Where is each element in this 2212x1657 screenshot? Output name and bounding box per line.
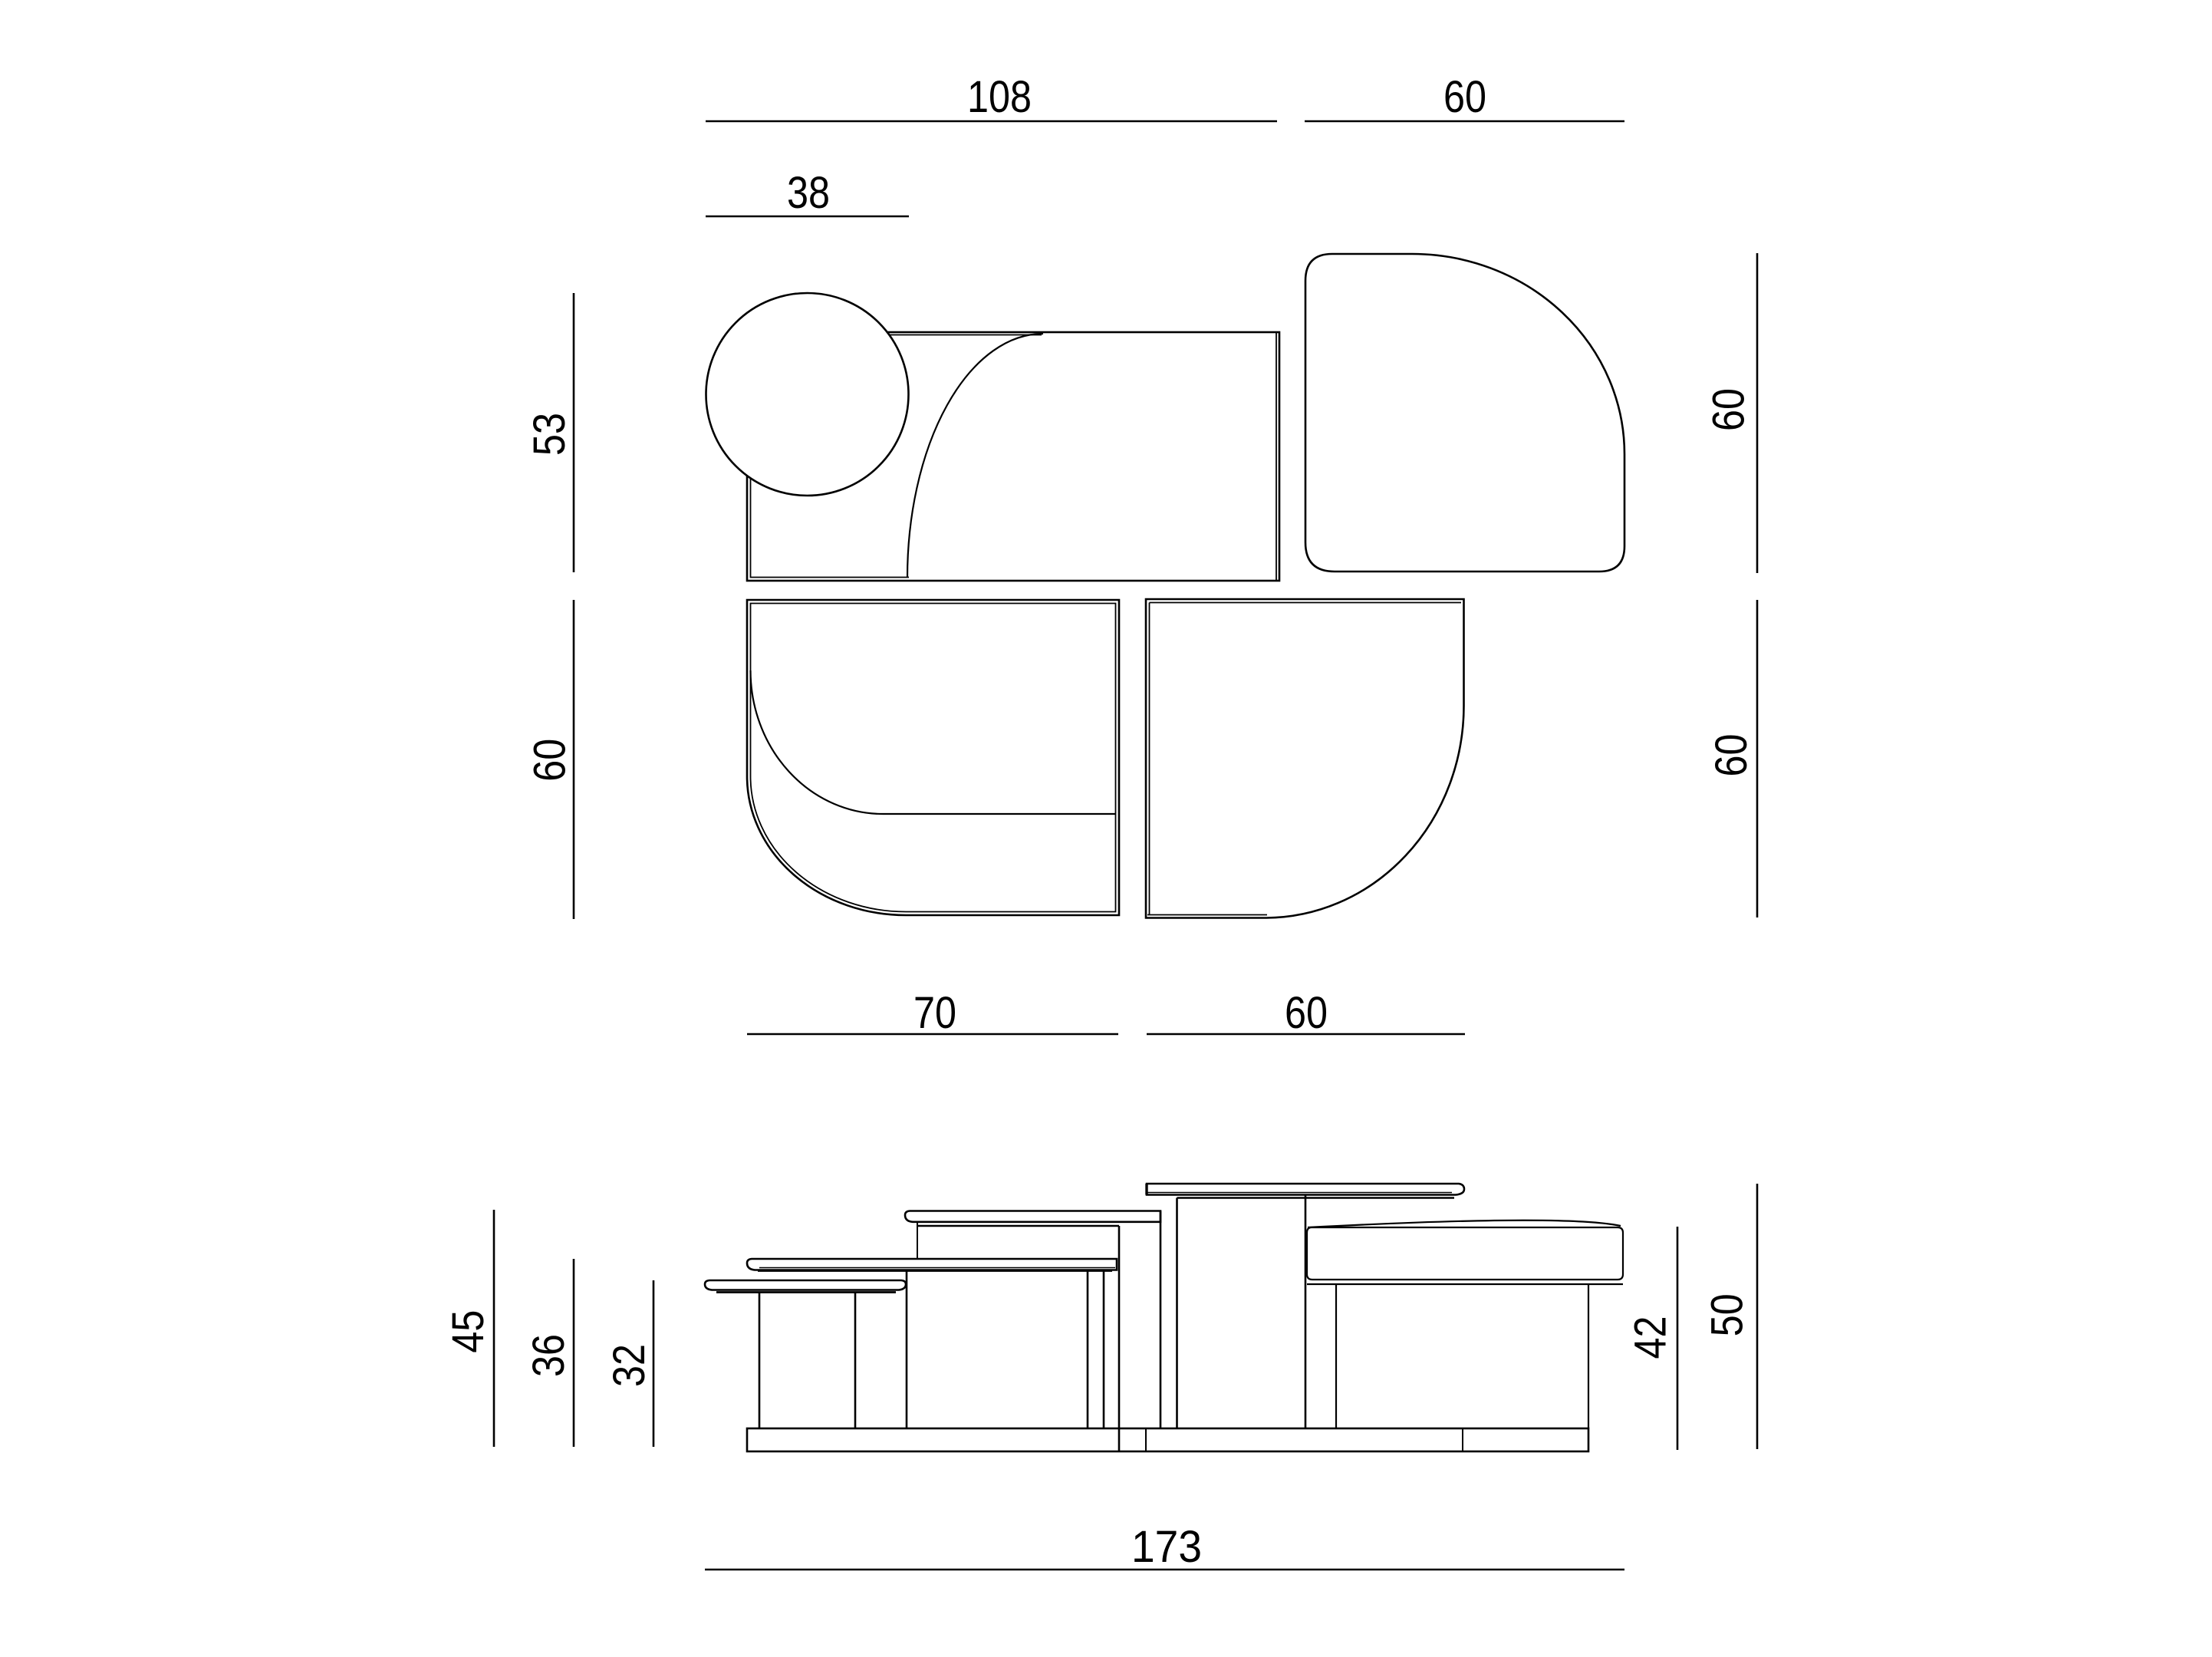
svg-text:60: 60 — [1704, 388, 1754, 431]
svg-text:38: 38 — [787, 168, 830, 218]
svg-text:42: 42 — [1626, 1316, 1676, 1359]
svg-text:32: 32 — [604, 1344, 654, 1387]
svg-text:36: 36 — [524, 1334, 574, 1377]
svg-text:60: 60 — [1707, 734, 1756, 777]
svg-text:60: 60 — [525, 739, 575, 782]
svg-text:108: 108 — [967, 72, 1032, 122]
svg-text:60: 60 — [1285, 988, 1328, 1038]
svg-text:53: 53 — [525, 413, 574, 456]
svg-text:173: 173 — [1131, 1522, 1202, 1572]
svg-text:45: 45 — [443, 1310, 493, 1353]
svg-text:50: 50 — [1703, 1293, 1753, 1336]
svg-text:70: 70 — [913, 988, 956, 1038]
svg-text:60: 60 — [1443, 72, 1486, 122]
